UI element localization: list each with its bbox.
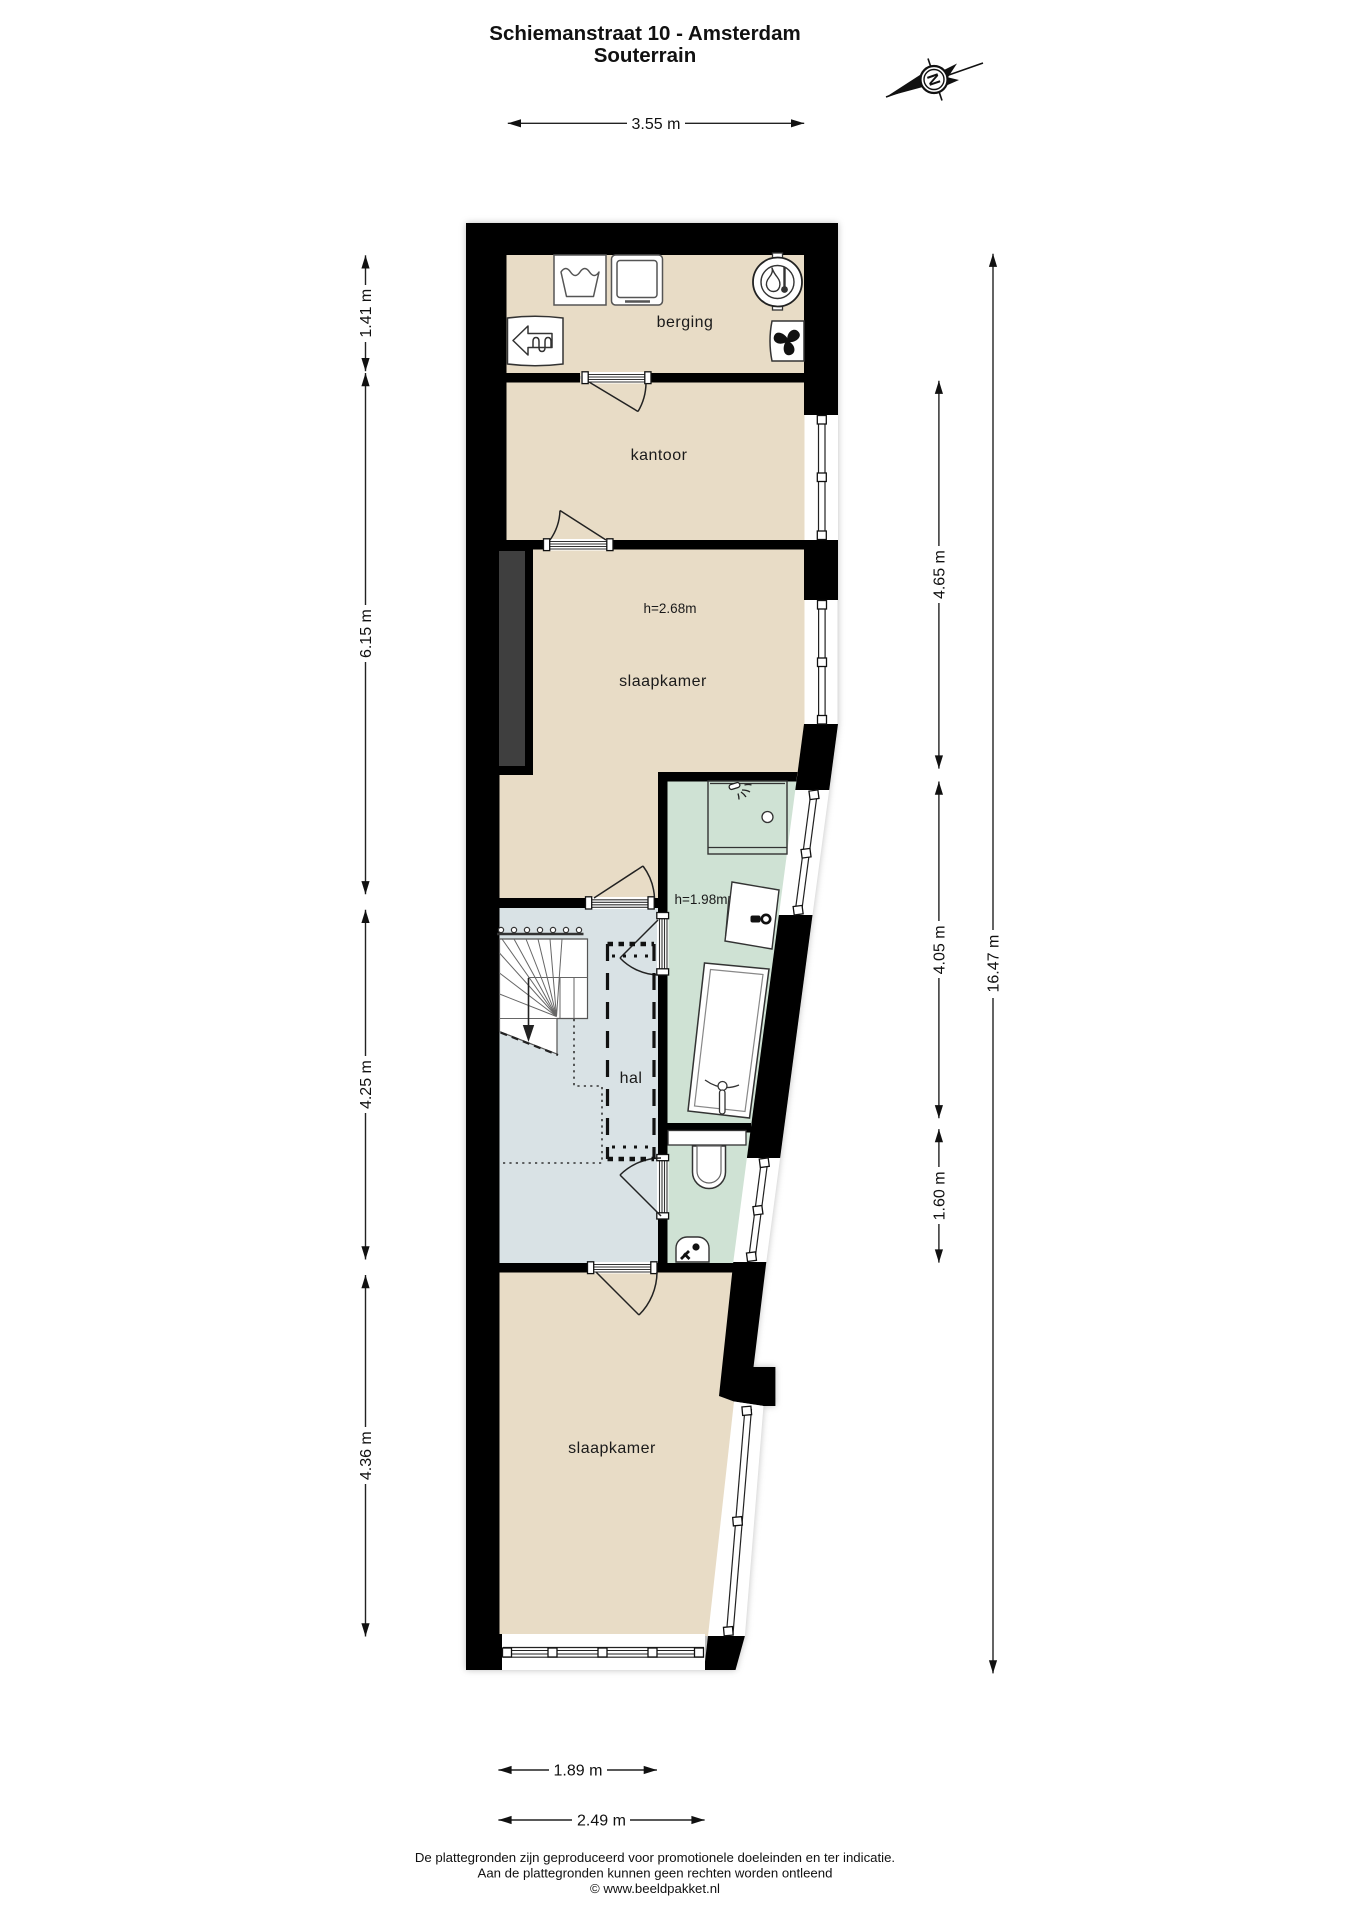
svg-text:h=1.98m: h=1.98m [675,892,728,907]
svg-text:4.05 m: 4.05 m [932,925,949,974]
svg-text:1.89 m: 1.89 m [554,1763,603,1780]
svg-text:4.36 m: 4.36 m [358,1431,375,1480]
svg-text:1.60 m: 1.60 m [932,1171,949,1220]
svg-text:© www.beeldpakket.nl: © www.beeldpakket.nl [590,1881,720,1896]
svg-text:slaapkamer: slaapkamer [568,1440,656,1457]
svg-text:hal: hal [620,1070,643,1087]
svg-text:2.49 m: 2.49 m [577,1813,626,1830]
svg-text:3.55 m: 3.55 m [632,116,681,133]
svg-text:Aan de plattegronden kunnen ge: Aan de plattegronden kunnen geen rechten… [478,1866,833,1881]
svg-text:1.41 m: 1.41 m [358,289,375,338]
svg-text:4.25 m: 4.25 m [358,1060,375,1109]
svg-text:slaapkamer: slaapkamer [619,673,707,690]
svg-text:kantoor: kantoor [631,447,688,464]
svg-text:h=2.68m: h=2.68m [644,601,697,616]
svg-text:4.65 m: 4.65 m [932,550,949,599]
svg-text:6.15 m: 6.15 m [358,609,375,658]
svg-text:16.47 m: 16.47 m [986,935,1003,993]
svg-text:berging: berging [657,314,714,331]
svg-text:Souterrain: Souterrain [594,44,697,67]
svg-text:De plattegronden zijn geproduc: De plattegronden zijn geproduceerd voor … [415,1850,895,1865]
svg-text:Schiemanstraat 10 - Amsterdam: Schiemanstraat 10 - Amsterdam [489,22,800,45]
